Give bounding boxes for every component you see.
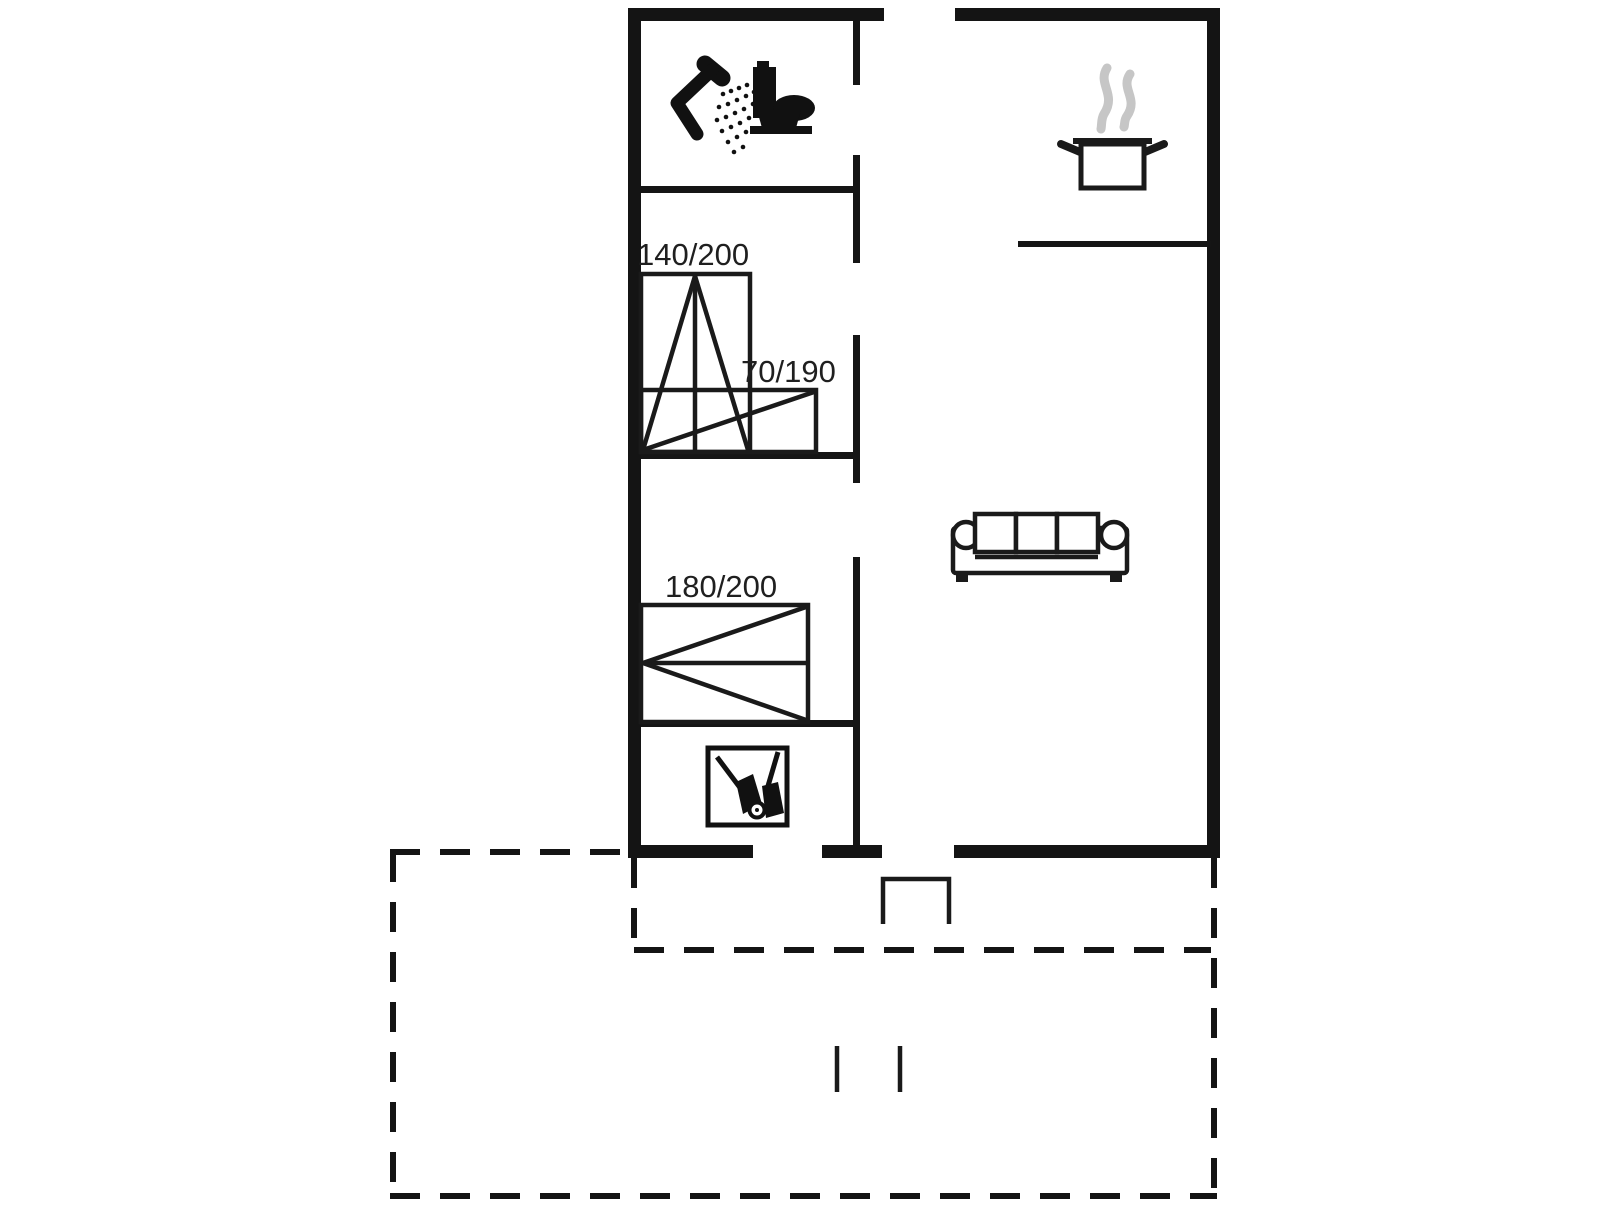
pot-body [1081, 144, 1144, 188]
hall-wall-segment-3 [853, 335, 860, 483]
sofa-cushion-1 [975, 514, 1016, 552]
cooking-pot-icon [1061, 68, 1164, 188]
hall-wall-segment-4 [853, 557, 860, 845]
hall-wall-segment-1 [853, 21, 860, 85]
bed-double-180x200 [641, 605, 808, 722]
pot-handle-right [1145, 144, 1164, 152]
toilet-icon [750, 61, 815, 134]
kitchen-counter-line [1018, 241, 1211, 247]
sofa-icon [953, 514, 1127, 582]
floor-plan-canvas: 140/200 70/190 180/200 [0, 0, 1606, 1205]
terrace-dashed-outline [390, 852, 1217, 1202]
vacuum-wheel-hub [755, 808, 759, 812]
pot-handle-left [1061, 144, 1080, 152]
sofa-armrest-right [1101, 522, 1127, 548]
top-wall-right-segment [955, 8, 1220, 21]
bottom-wall-right-segment [954, 845, 1220, 858]
sofa-cushion-3 [1057, 514, 1098, 552]
shower-icon [677, 64, 763, 154]
floor-plan-drawing: 140/200 70/190 180/200 [0, 0, 1606, 1205]
bed-single-70x190 [641, 390, 816, 452]
bed-size-label-140-200: 140/200 [637, 237, 749, 272]
cleaning-equipment-icon [708, 748, 787, 825]
outer-walls [628, 8, 1220, 858]
bed-size-label-70-190: 70/190 [741, 354, 836, 389]
bathroom-icons [677, 61, 815, 154]
bathroom-south-wall [641, 186, 860, 193]
bed-size-label-180-200: 180/200 [665, 569, 777, 604]
bed-double-140x200 [641, 274, 750, 452]
bottom-wall-middle-segment [822, 845, 882, 858]
hall-wall-segment-2 [853, 155, 860, 263]
sofa-cushion-2 [1016, 514, 1057, 552]
steam-line-left [1101, 68, 1109, 129]
entrance-step [883, 879, 949, 924]
steam-line-right [1124, 74, 1131, 127]
terrace-opening-marks [837, 1046, 900, 1092]
bottom-wall-left-segment [628, 845, 753, 858]
top-wall-left-segment [628, 8, 884, 21]
kitchen-icons [1061, 68, 1164, 188]
right-wall [1207, 8, 1220, 858]
